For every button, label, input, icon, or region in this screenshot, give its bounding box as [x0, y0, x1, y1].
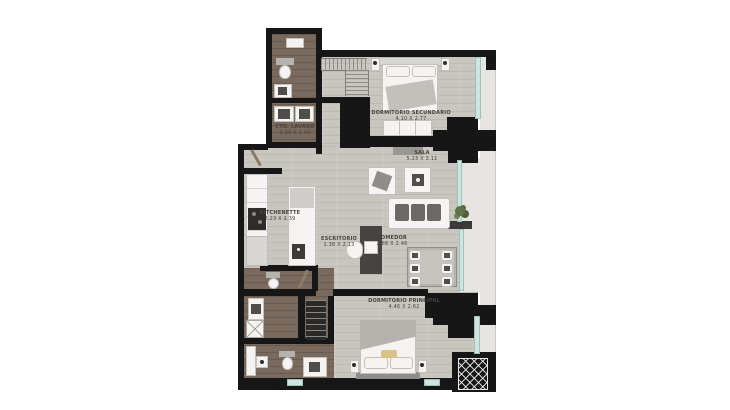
lamp-icon — [420, 363, 424, 367]
decor-icon — [416, 178, 420, 182]
room-label-comedor: COMEDOR 2.88 X 2.46 — [372, 235, 412, 247]
column — [433, 130, 496, 151]
room-dims: 2.88 X 2.46 — [372, 241, 412, 247]
room-label-escritorio: ESCRITORIO 2.38 X 2.13 — [320, 236, 358, 248]
lamp-icon — [443, 61, 447, 65]
accent-pillow — [381, 350, 397, 358]
room-dims: 4.46 X 2.62 — [362, 304, 446, 310]
dryer-door — [299, 109, 310, 119]
closet-rack — [345, 70, 369, 96]
dining-chair-seat — [444, 253, 450, 258]
room-dims: 5.23 X 3.11 — [404, 156, 440, 162]
dining-chair-seat — [444, 279, 450, 284]
dining-chair-seat — [412, 253, 418, 258]
shower-glass — [246, 346, 256, 376]
pillow — [390, 357, 413, 369]
window — [474, 316, 480, 354]
room-label-cto-lavado: CTO. LAVADO 1.38 X 1.40 — [272, 124, 318, 136]
sofa-cushion — [395, 204, 409, 221]
lamp-icon — [373, 61, 377, 65]
pillow — [386, 66, 410, 77]
room-label-dormitorio-secundario: DORMITORIO SECUNDARIO 4.10 X 2.77 — [370, 110, 452, 122]
dining-chair-seat — [412, 266, 418, 271]
wall — [266, 142, 322, 148]
sink — [309, 362, 320, 372]
window — [424, 379, 440, 386]
faucet-icon — [297, 248, 300, 251]
wall — [270, 98, 316, 103]
toilet — [279, 65, 291, 79]
wall — [298, 296, 305, 342]
window — [459, 229, 464, 291]
lamp-icon — [352, 363, 356, 367]
wall — [266, 28, 322, 34]
pillow — [364, 357, 388, 369]
room-label-sala: SALA 5.23 X 3.11 — [404, 150, 440, 162]
sofa-cushion — [411, 204, 425, 221]
pillow — [412, 66, 436, 77]
dining-chair-seat — [444, 266, 450, 271]
washer-door — [278, 109, 290, 119]
plant-icon — [455, 206, 465, 216]
dresser — [383, 120, 433, 136]
sink — [251, 304, 261, 314]
wall — [312, 271, 318, 291]
window — [287, 379, 303, 386]
wall — [244, 289, 316, 296]
dining-chair-seat — [412, 279, 418, 284]
sink — [278, 87, 287, 95]
wall — [486, 50, 496, 70]
fridge — [246, 236, 268, 266]
island-sink — [292, 244, 305, 259]
room-dims: 4.10 X 2.77 — [370, 116, 452, 122]
toilet — [282, 357, 293, 370]
shower — [246, 320, 264, 338]
window — [475, 57, 481, 119]
sofa-cushion — [427, 204, 441, 221]
room-dims: 3.23 X 2.39 — [258, 216, 302, 222]
room-label-kitchenette: KITCHENETTE 3.23 X 2.39 — [258, 210, 302, 222]
floorplan: CTO. LAVADO 1.38 X 1.40 DORMITORIO SECUN… — [0, 0, 730, 410]
wall — [328, 296, 334, 344]
burner-icon — [252, 212, 256, 216]
closet-shelves — [306, 300, 326, 340]
room-dims: 1.38 X 1.40 — [272, 130, 318, 136]
wall — [316, 50, 494, 57]
shelf-unit — [286, 38, 304, 48]
drain-icon — [260, 360, 264, 364]
wall — [333, 289, 428, 296]
room-dims: 2.38 X 2.13 — [320, 242, 358, 248]
island-counter — [290, 188, 314, 208]
ac-unit — [458, 358, 488, 390]
toilet-tank — [276, 58, 294, 65]
room-label-dormitorio-principal: DORMITORIO PRINCIPAL 4.46 X 2.62 — [362, 298, 446, 310]
wall — [316, 97, 342, 103]
toilet — [268, 278, 279, 289]
wall — [238, 144, 244, 390]
